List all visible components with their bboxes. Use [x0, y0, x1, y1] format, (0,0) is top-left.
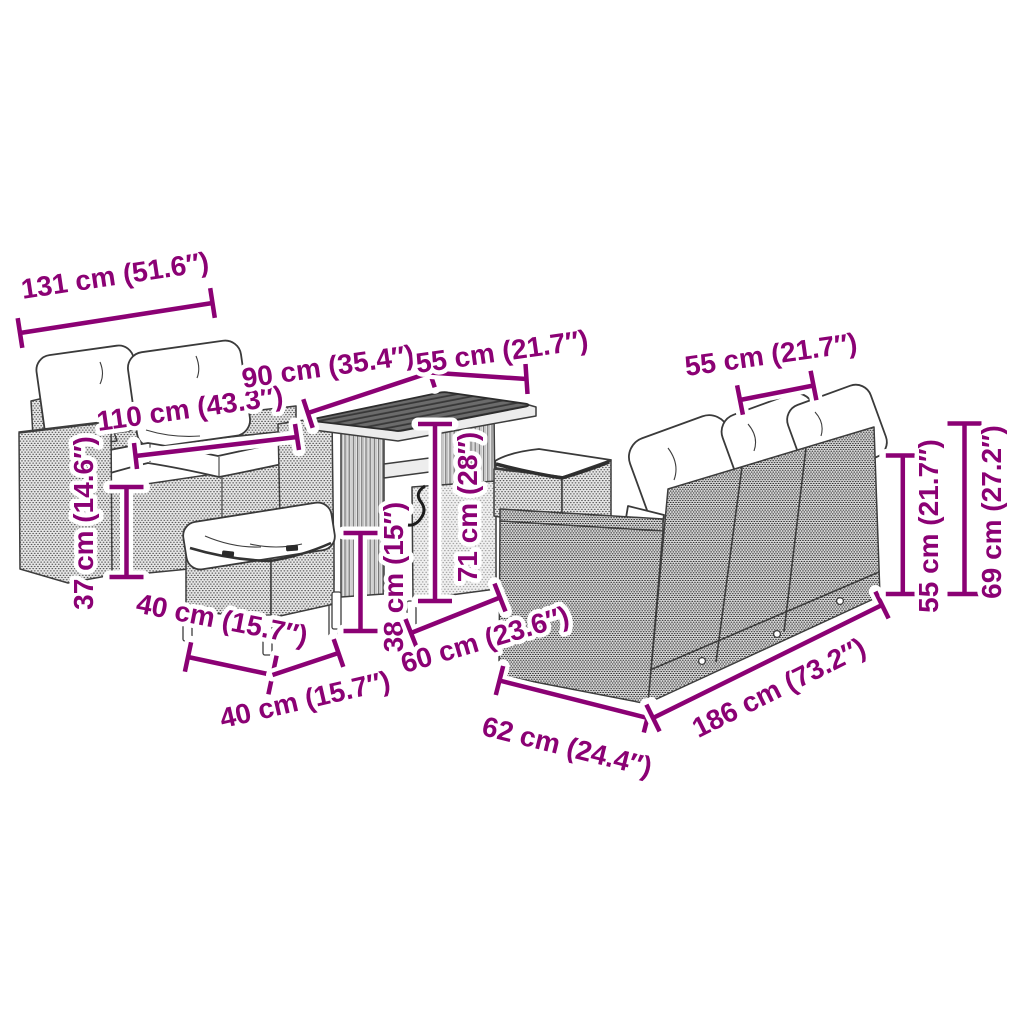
svg-text:69 cm (27.2″): 69 cm (27.2″) — [976, 425, 1007, 599]
svg-text:55 cm (21.7″): 55 cm (21.7″) — [913, 439, 944, 613]
svg-text:71 cm (28″): 71 cm (28″) — [452, 432, 483, 582]
svg-text:37 cm (14.6″): 37 cm (14.6″) — [68, 436, 99, 610]
